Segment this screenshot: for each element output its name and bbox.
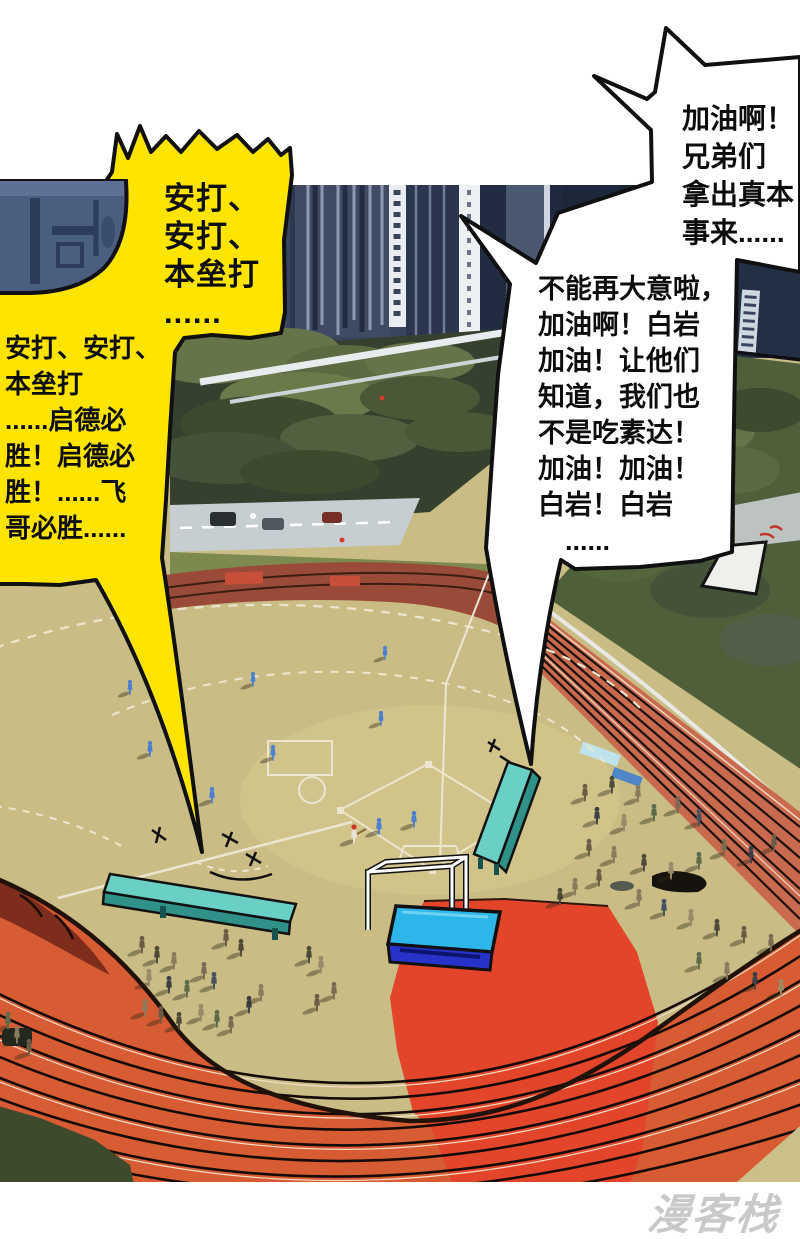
top-right-bubble-text: 加油啊！ 兄弟们 拿出真本 事来...... — [682, 100, 794, 252]
tarp-blob-small — [610, 881, 634, 891]
high-jump-mat — [388, 906, 500, 970]
mid-right-bubble-text: 不能再大意啦， 加油啊！白岩 加油！让他们 知道，我们也 不是吃素达！ 加油！加… — [538, 271, 727, 559]
comic-page: 安打、 安打、 本垒打 ...... 安打、安打、 本垒打 ......启德必 … — [0, 0, 800, 1239]
mankezhan-watermark-logo: 漫客栈 — [645, 1181, 782, 1239]
yellow-bubble-text-top: 安打、 安打、 本垒打 ...... — [164, 180, 260, 332]
stadium-scene-illustration — [0, 0, 800, 1239]
yellow-bubble-text-left: 安打、安打、 本垒打 ......启德必 胜！启德必 胜！......飞 哥必胜… — [5, 330, 161, 546]
